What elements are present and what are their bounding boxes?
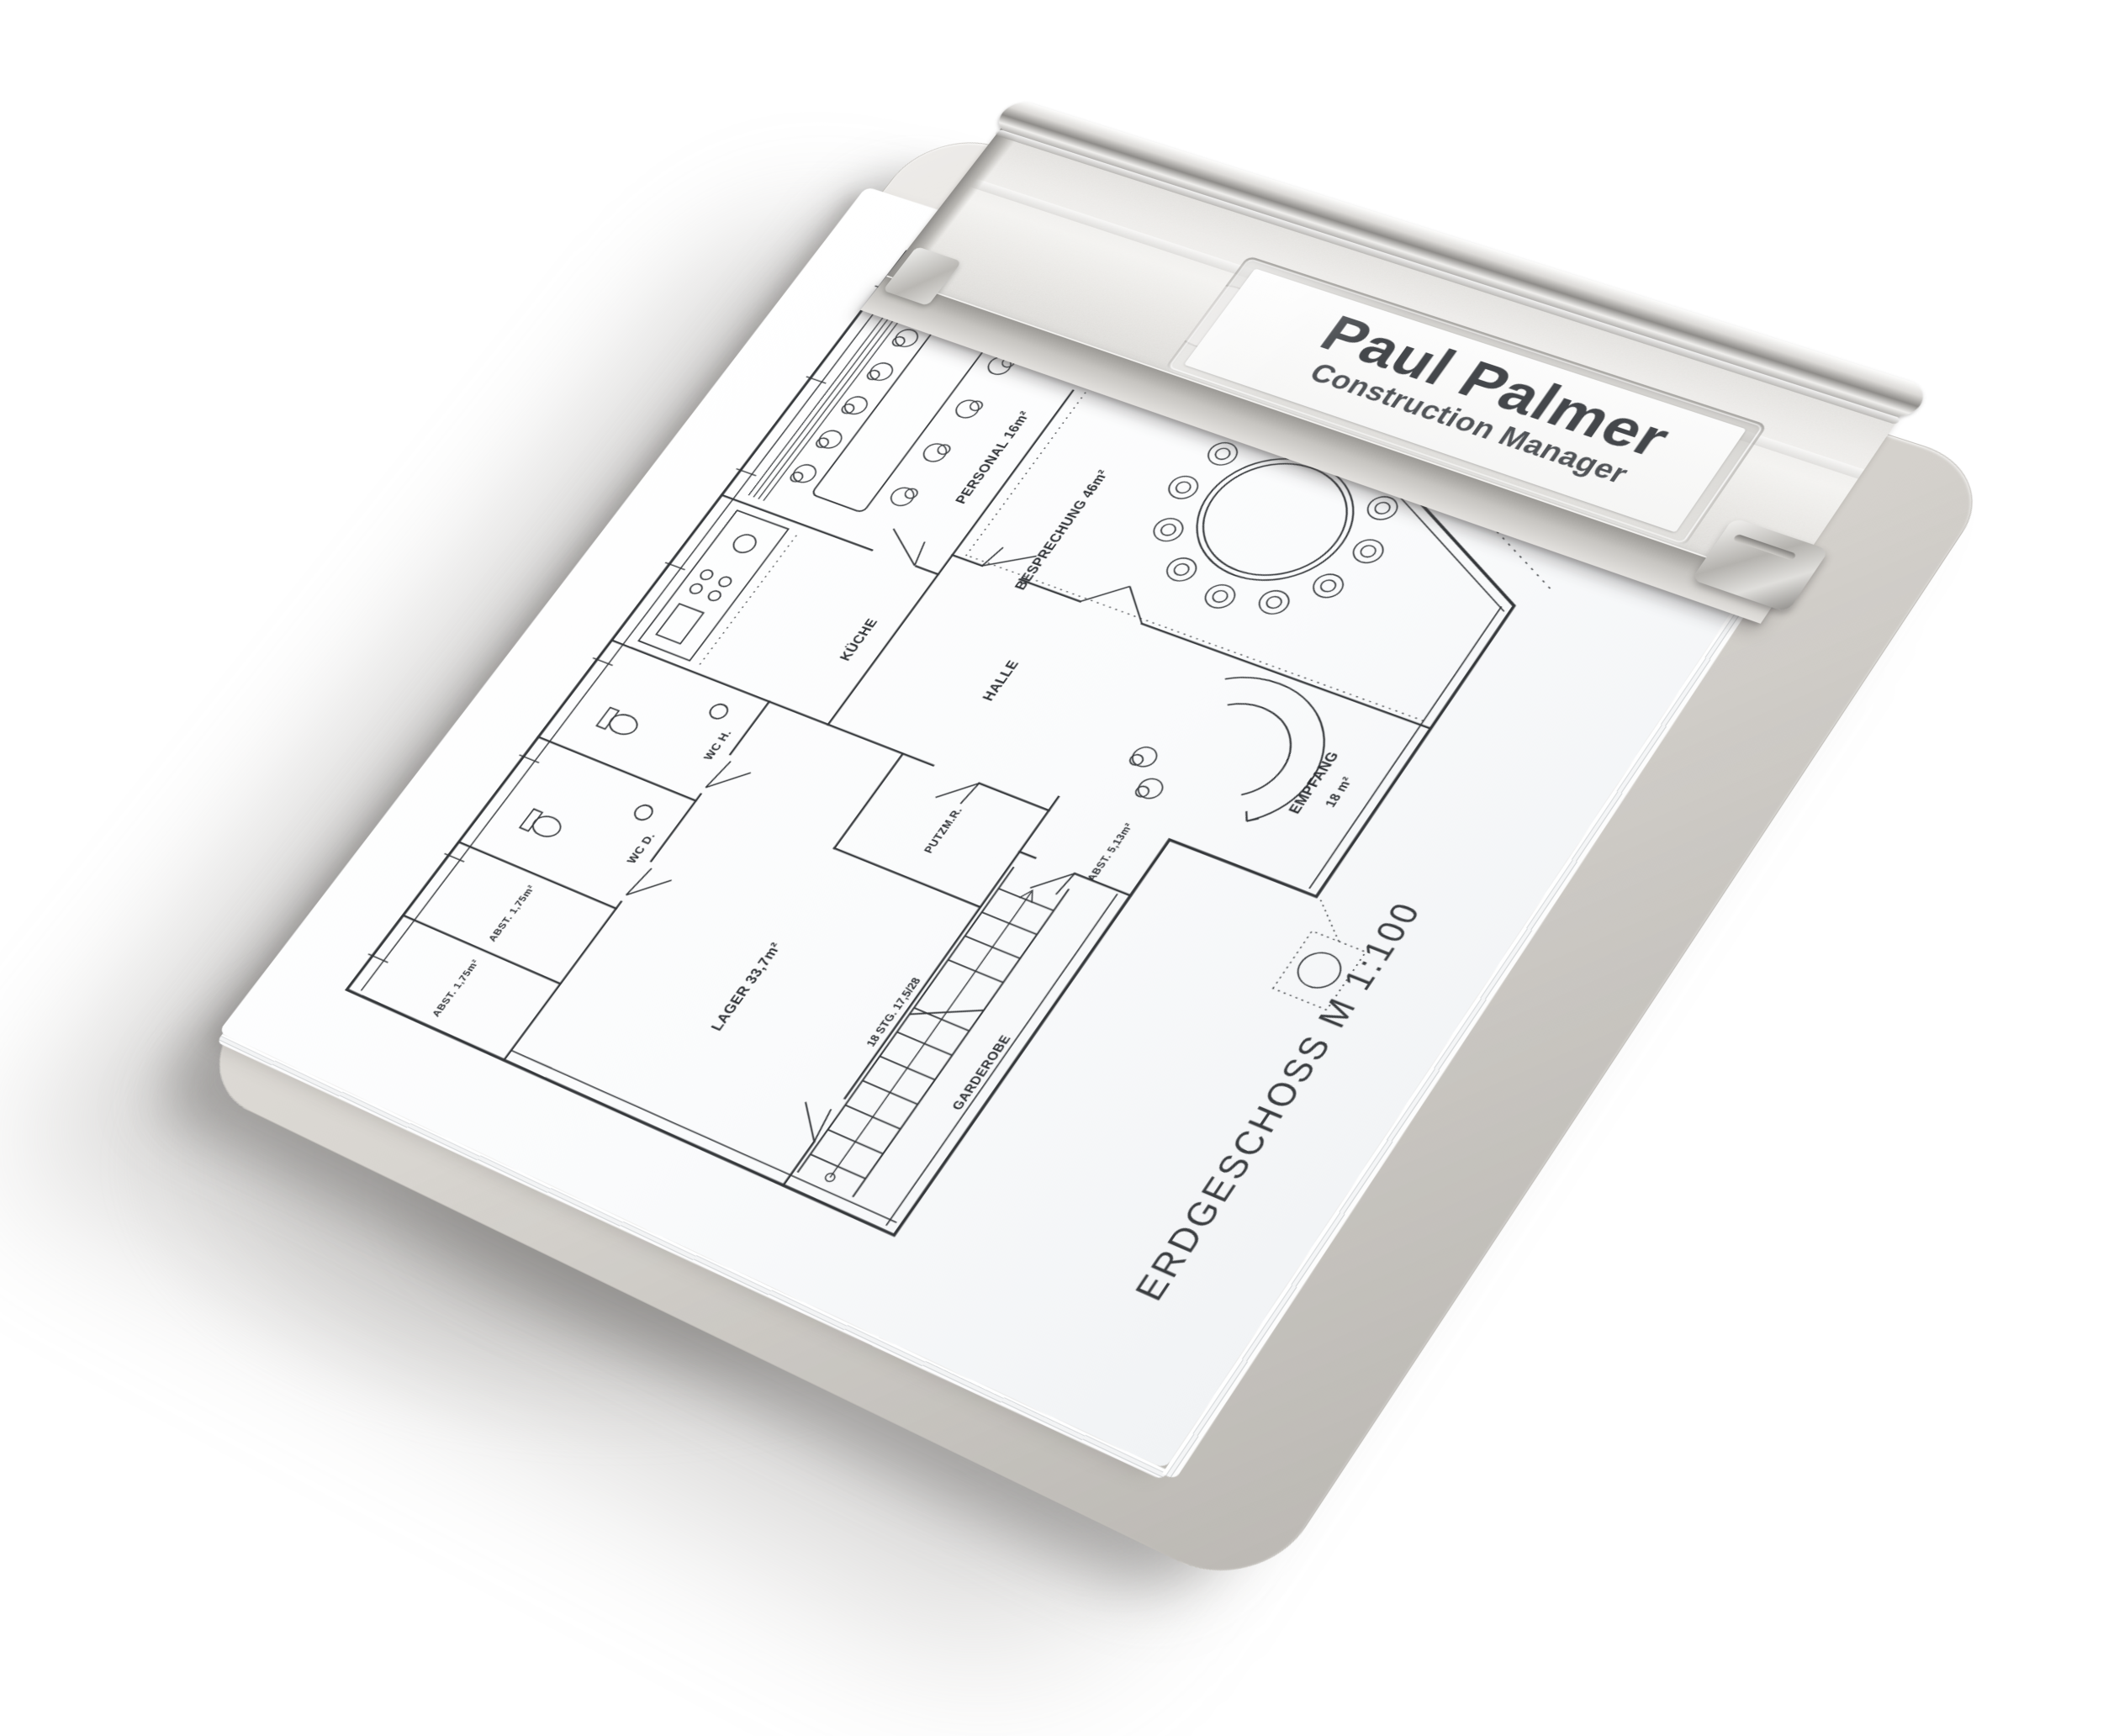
room-label-besprechung: BESPRECHUNG 46m²	[1012, 468, 1113, 592]
room-label-lager: LAGER 33,7m²	[708, 941, 785, 1033]
room-label-abst-3: ABST. 5,13m²	[1086, 821, 1136, 883]
room-label-abst-1: ABST. 1,75m²	[431, 958, 482, 1019]
room-label-empfang-area: 18 m²	[1323, 775, 1356, 810]
stair-note-label: 18 STG. 17,5/28	[864, 976, 923, 1048]
room-label-personal: PERSONAL 16m²	[953, 409, 1034, 505]
room-label-kueche: KÜCHE	[837, 616, 882, 662]
room-label-abst-2: ABST. 1,75m²	[487, 884, 538, 943]
room-label-putzm: PUTZM.R.	[922, 806, 965, 855]
room-label-halle: HALLE	[980, 658, 1023, 703]
room-label-wc-h: WC H.	[701, 729, 734, 762]
product-photo: PERSONAL 16m² KÜCHE HALLE BESPRECHUNG 46…	[0, 0, 2119, 1736]
